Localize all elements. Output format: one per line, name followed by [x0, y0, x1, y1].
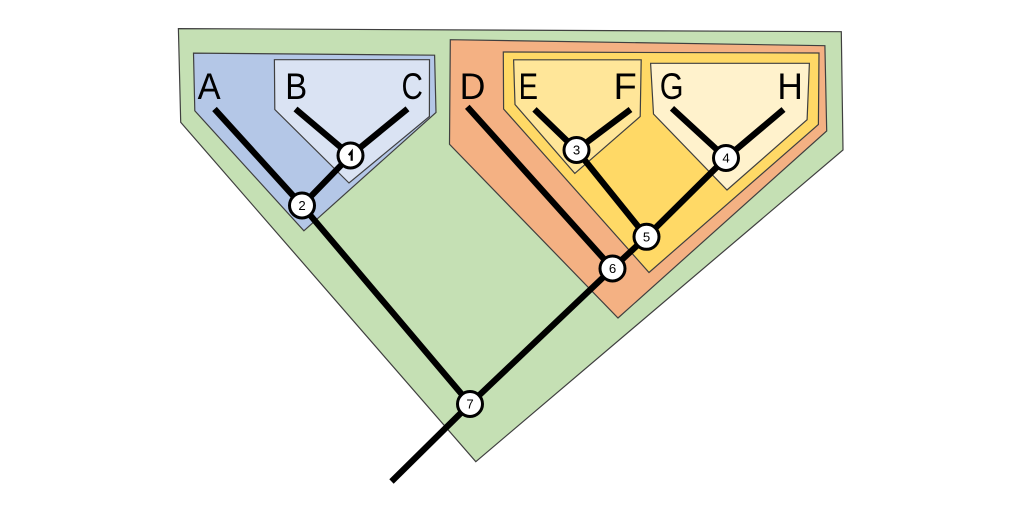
svg-text:6: 6 — [609, 261, 616, 276]
svg-text:4: 4 — [722, 151, 729, 166]
svg-text:G: G — [660, 66, 684, 107]
svg-text:A: A — [198, 66, 221, 107]
svg-text:7: 7 — [466, 397, 473, 412]
svg-text:C: C — [402, 66, 423, 107]
svg-text:D: D — [460, 66, 486, 107]
svg-text:E: E — [519, 66, 538, 107]
svg-text:B: B — [285, 66, 307, 107]
svg-text:5: 5 — [643, 229, 650, 244]
svg-text:3: 3 — [573, 143, 580, 158]
svg-text:H: H — [777, 66, 803, 107]
svg-text:2: 2 — [298, 198, 305, 213]
svg-text:F: F — [614, 66, 637, 107]
